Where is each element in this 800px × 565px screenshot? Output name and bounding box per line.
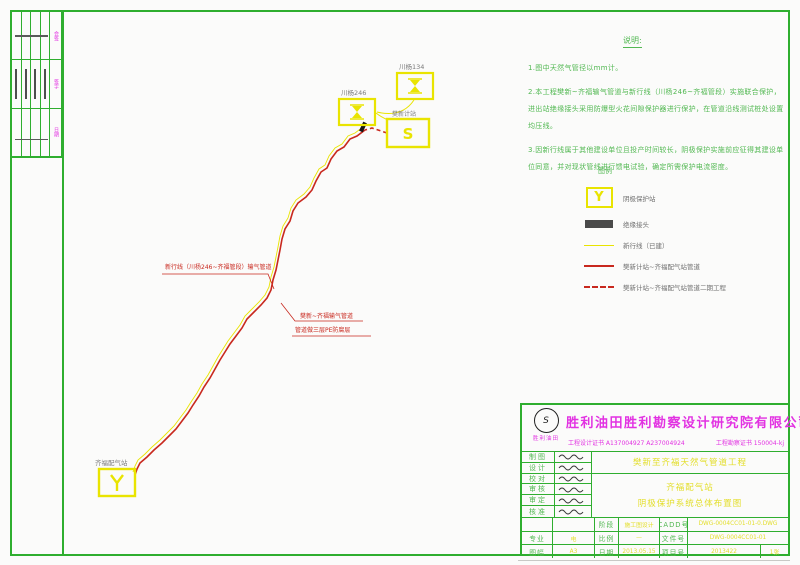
signoff-group-1: 会签 bbox=[12, 12, 61, 60]
projno-value: 2013422 bbox=[688, 549, 760, 555]
cadd-value: DWG-0004CC01-01-0.DWG bbox=[688, 518, 788, 531]
legend-row: 樊新计站~齐福配气站管道二期工程 bbox=[584, 282, 789, 292]
note-item: 2.本工程樊新~齐福输气管道与新行线（川杨246~齐福管段）实施联合保护，进出站… bbox=[528, 84, 786, 135]
legend-title: 图例 bbox=[598, 166, 789, 176]
role-labels-column: 制图 设计 校对 审核 审定 核准 bbox=[522, 452, 554, 517]
role-label: 设计 bbox=[522, 463, 554, 474]
cathodic-protection-station-icon: Y bbox=[586, 187, 613, 208]
signoff-group-3: 日期 bbox=[12, 109, 61, 156]
scale-value: — bbox=[619, 532, 660, 545]
file-value: DWG-0004CC01-01 bbox=[688, 532, 788, 545]
notes-block: 说明: 1.图中天然气管径以mm计。 2.本工程樊新~齐福输气管道与新行线（川杨… bbox=[528, 28, 786, 176]
company-logo-icon: S bbox=[534, 408, 559, 433]
signature-scribble bbox=[558, 486, 588, 493]
drawing-sheet: { "colors": { "frame_green": "#2fae2f", … bbox=[0, 0, 800, 565]
existing-line-icon bbox=[584, 245, 614, 246]
stage-value: 施工图设计 bbox=[619, 518, 660, 531]
legend-row: 新行线（已建） bbox=[584, 240, 789, 250]
station-s-symbol: S bbox=[387, 119, 429, 147]
svg-text:管道做三层PE防腐层: 管道做三层PE防腐层 bbox=[295, 326, 350, 334]
role-label: 审定 bbox=[522, 495, 554, 506]
signature-mark bbox=[34, 69, 36, 99]
project-name: 樊新至齐福天然气管道工程 bbox=[633, 456, 747, 468]
role-label: 审核 bbox=[522, 484, 554, 495]
notes-title: 说明: bbox=[623, 35, 642, 48]
note-item: 1.图中天然气管径以mm计。 bbox=[528, 60, 786, 77]
projno-label: 项目号 bbox=[660, 545, 688, 558]
title-block-fields: 阶段 施工图设计 CADD号 DWG-0004CC01-01-0.DWG 专业 … bbox=[522, 517, 788, 558]
pipeline-solid-icon bbox=[584, 265, 614, 267]
signature-mark bbox=[15, 69, 17, 99]
existing-line-parallel bbox=[133, 127, 363, 472]
svg-text:樊新~齐福输气管道: 樊新~齐福输气管道 bbox=[300, 312, 353, 320]
station-y-label: 齐福配气站 bbox=[95, 458, 128, 467]
file-label: 文件号 bbox=[660, 532, 688, 545]
well-134-symbol bbox=[397, 73, 433, 99]
signoff-group-label: 会签 bbox=[50, 12, 61, 59]
station-s-label: 樊新计站 bbox=[392, 110, 416, 118]
major-value: 电 bbox=[553, 532, 595, 545]
signature-line bbox=[15, 139, 48, 141]
pipeline-phase2-segment bbox=[365, 128, 387, 133]
cadd-label: CADD号 bbox=[660, 518, 688, 531]
certificates-row: 工程设计证书 A137004927 A237004924 工程勘察证书 1500… bbox=[568, 438, 784, 447]
scale-label: 比例 bbox=[595, 532, 619, 545]
company-logo: S 胜利油田 bbox=[528, 408, 564, 449]
legend-row: 樊新计站~齐福配气站管道 bbox=[584, 261, 789, 271]
legend-row: Y 阴极保护站 bbox=[584, 187, 789, 208]
title-block-middle: 制图 设计 校对 审核 审定 核准 樊新至齐福天然气管道工程 齐福配气站 阴极保… bbox=[522, 452, 788, 517]
size-label: 图幅 bbox=[522, 545, 553, 558]
well-134-label: 川杨134 bbox=[399, 62, 424, 71]
role-label: 核准 bbox=[522, 506, 554, 517]
signoff-group-label: 签字 bbox=[50, 60, 61, 107]
survey-certificate: 工程勘察证书 150004-kj bbox=[716, 438, 784, 447]
sheet-number: 1张 bbox=[760, 545, 788, 558]
station-y-symbol bbox=[99, 469, 135, 496]
scan-artifact-line bbox=[518, 560, 790, 561]
signature-scribble bbox=[558, 453, 588, 460]
signature-mark bbox=[25, 69, 27, 99]
date-label: 日期 bbox=[595, 545, 619, 558]
signature-mark bbox=[44, 69, 46, 99]
legend-row: 绝缘接头 bbox=[584, 219, 789, 229]
well-246-label: 川杨246 bbox=[341, 88, 366, 97]
design-certificate: 工程设计证书 A137004927 A237004924 bbox=[568, 438, 685, 447]
legend-block: 图例 Y 阴极保护站 绝缘接头 新行线（已建） 樊新计站~齐福配气站管道 樊新计… bbox=[584, 166, 789, 292]
drawing-title: 阴极保护系统总体布置图 bbox=[638, 497, 743, 509]
signature-line bbox=[15, 35, 48, 37]
insulating-joint-mark bbox=[359, 122, 367, 133]
major-label: 专业 bbox=[522, 532, 553, 545]
signature-scribble bbox=[558, 508, 588, 515]
drawing-subtitle: 齐福配气站 bbox=[666, 481, 714, 493]
size-value: A3 bbox=[553, 545, 595, 558]
signoff-group-2: 签字 bbox=[12, 60, 61, 108]
role-label: 制图 bbox=[522, 452, 554, 463]
title-block-header: S 胜利油田 胜利油田胜利勘察设计研究院有限公司 工程设计证书 A1370049… bbox=[522, 405, 788, 452]
insulating-joint-icon bbox=[585, 220, 613, 228]
signatures-column bbox=[554, 452, 592, 517]
margin-signoff-table: 会签 签字 日期 bbox=[10, 10, 63, 158]
leader-newline: 新行线（川杨246~齐福管段）输气管道 bbox=[162, 263, 274, 289]
leader-pipeline-coating: 樊新~齐福输气管道 管道做三层PE防腐层 bbox=[281, 303, 371, 336]
stage-label: 阶段 bbox=[595, 518, 619, 531]
role-label: 校对 bbox=[522, 474, 554, 485]
svg-text:新行线（川杨246~齐福管段）输气管道: 新行线（川杨246~齐福管段）输气管道 bbox=[165, 263, 271, 271]
pipeline-phase2-icon bbox=[584, 286, 614, 288]
date-value: 2013.05.15 bbox=[619, 545, 660, 558]
svg-text:S: S bbox=[403, 125, 414, 143]
company-name: 胜利油田胜利勘察设计研究院有限公司 bbox=[566, 412, 786, 431]
signature-scribble bbox=[558, 475, 588, 482]
well-246-symbol bbox=[339, 99, 375, 125]
company-logo-text: 胜利油田 bbox=[528, 434, 564, 442]
signature-scribble bbox=[558, 464, 588, 471]
drawing-titles-area: 樊新至齐福天然气管道工程 齐福配气站 阴极保护系统总体布置图 bbox=[592, 452, 788, 517]
signature-scribble bbox=[558, 497, 588, 504]
pipeline-route bbox=[135, 130, 365, 480]
title-block: S 胜利油田 胜利油田胜利勘察设计研究院有限公司 工程设计证书 A1370049… bbox=[520, 403, 790, 556]
signoff-group-label: 日期 bbox=[50, 109, 61, 156]
